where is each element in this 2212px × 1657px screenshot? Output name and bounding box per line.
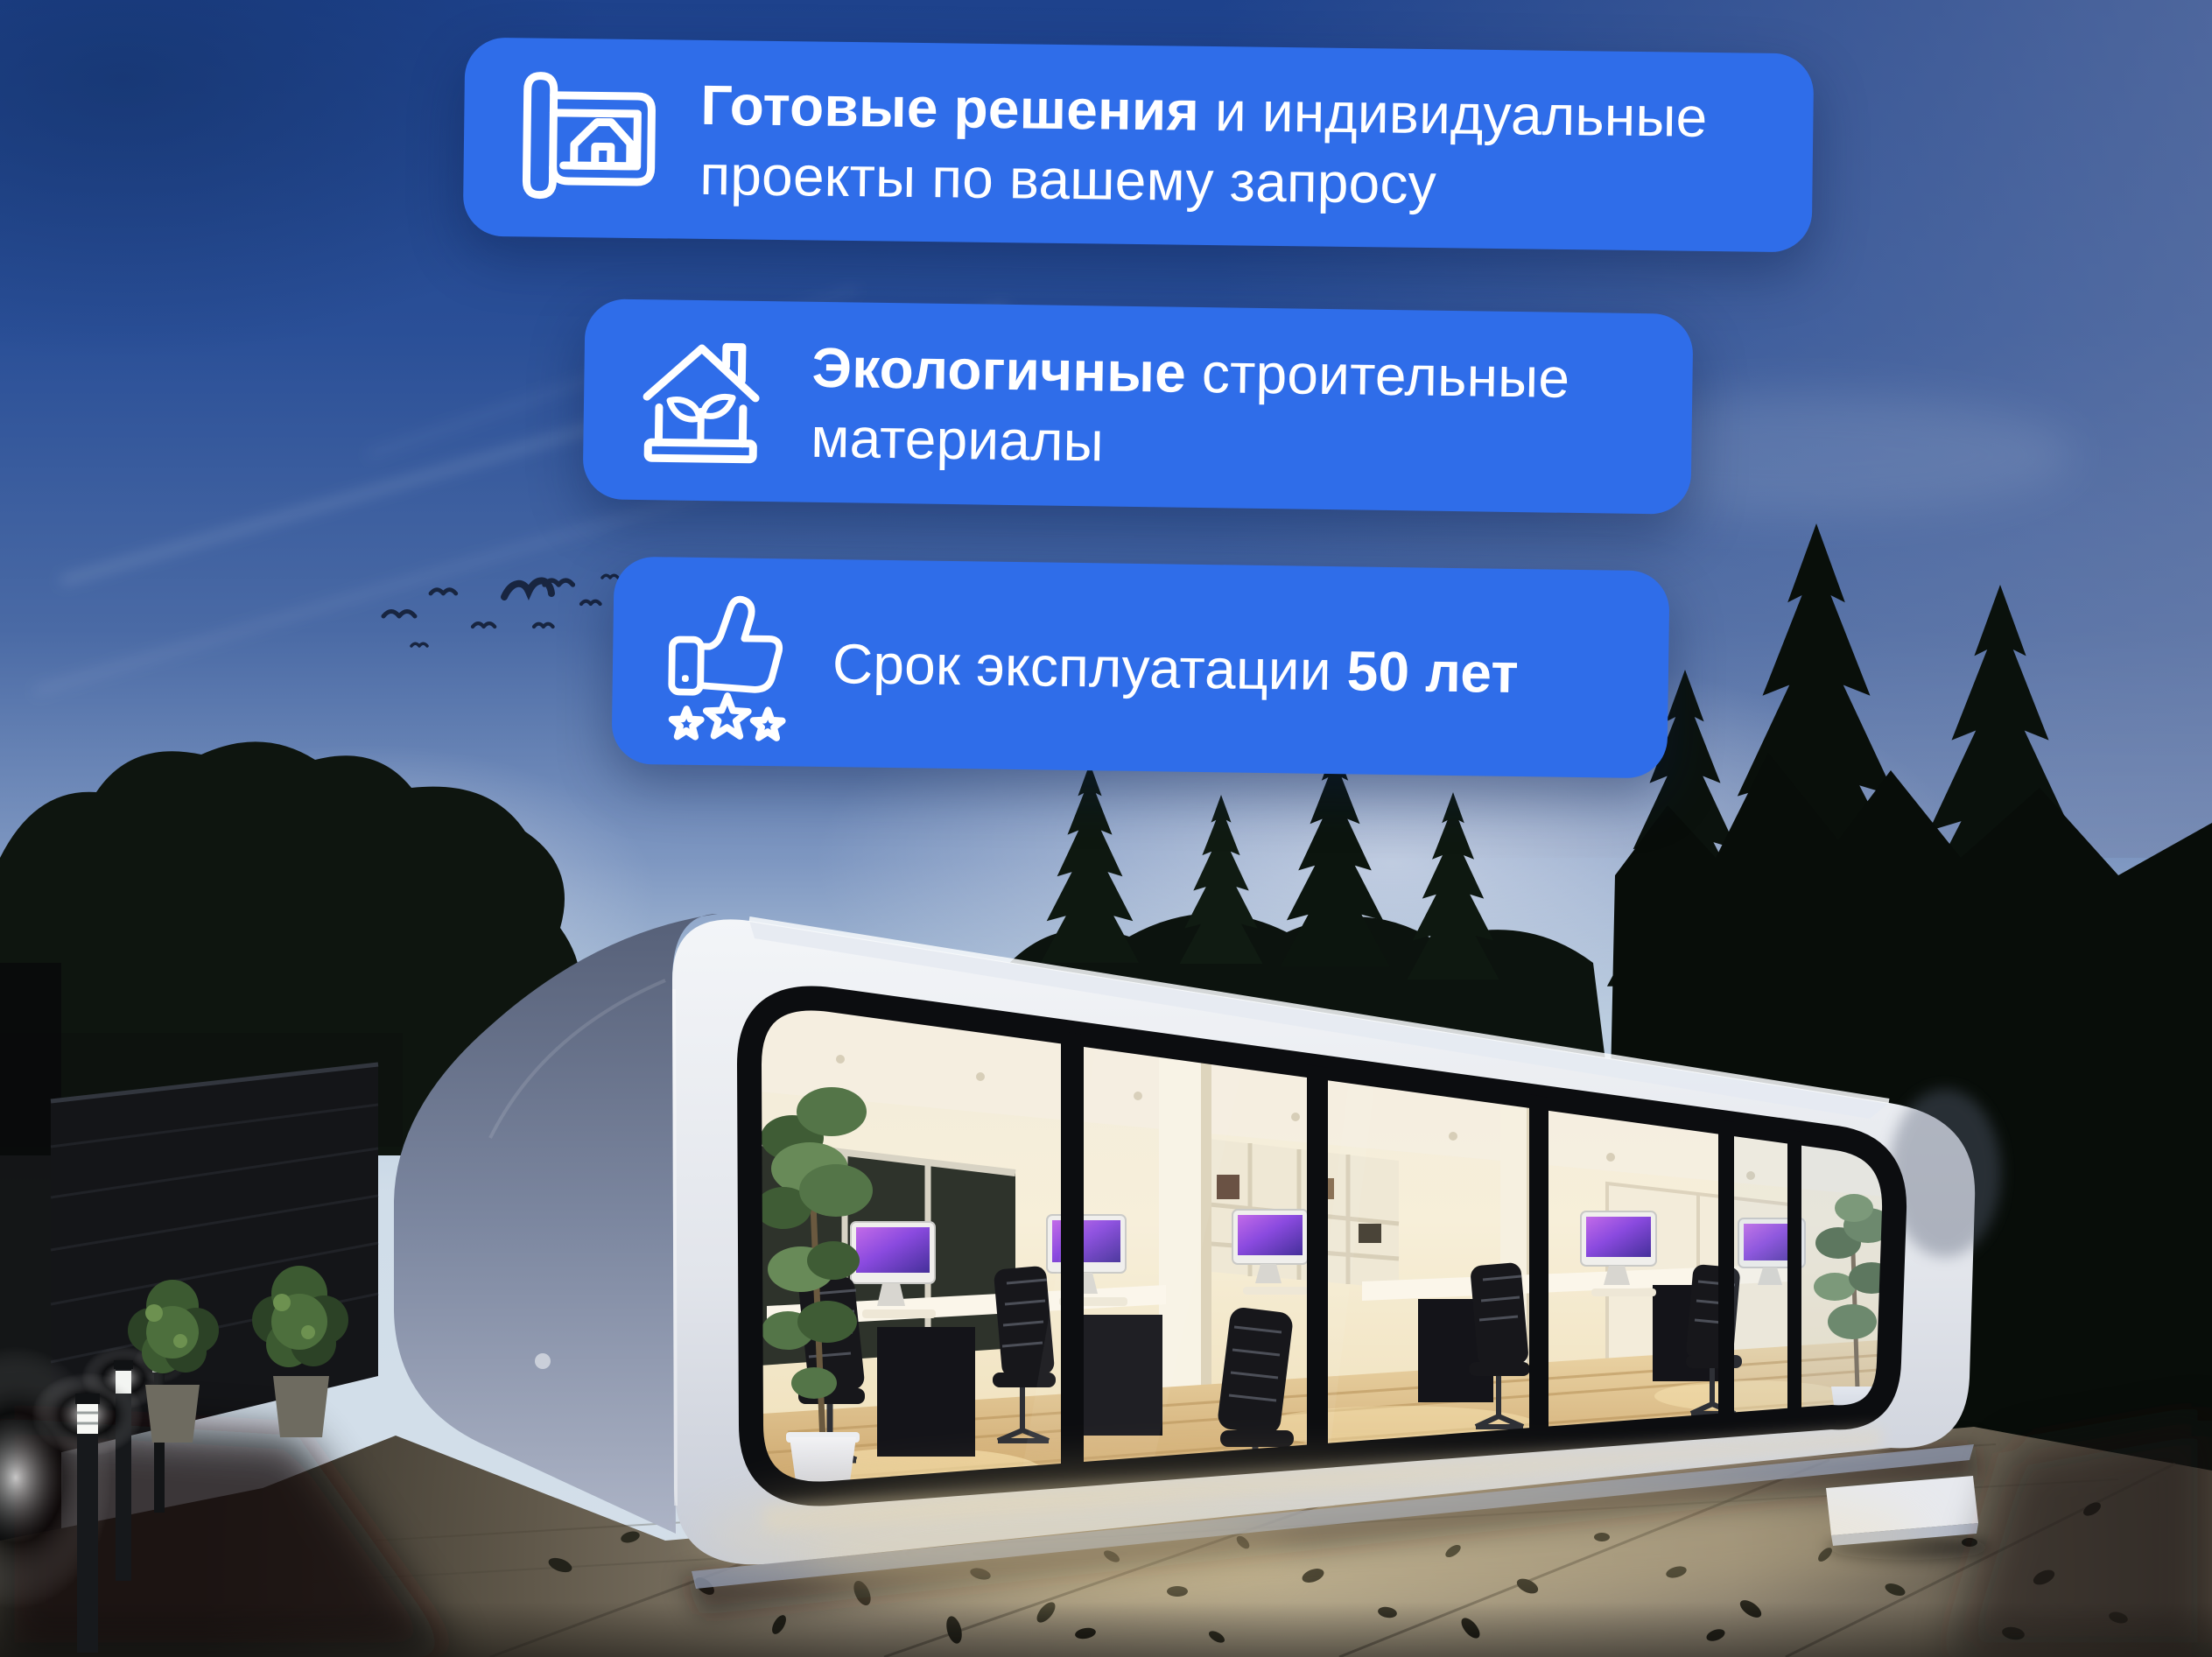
feature-card-text: Срок эксплуатации 50 лет: [832, 628, 1519, 708]
card-text-segment: Готовые решения: [700, 73, 1199, 142]
window-light-reflection: [700, 1462, 1926, 1611]
feature-card-text: Готовые решения и индивидуальные проекты…: [699, 69, 1708, 221]
feature-card-eco-materials: Экологичные строительные материалы: [582, 298, 1693, 515]
feature-card-ready-solutions: Готовые решения и индивидуальные проекты…: [463, 38, 1815, 253]
blueprint-house-icon: [512, 63, 663, 214]
thumbs-up-stars-icon: [661, 575, 799, 748]
eco-house-sprout-icon: [630, 329, 772, 471]
card-text-segment: Срок эксплуатации: [832, 632, 1348, 702]
text-line: Готовые решения и индивидуальные: [700, 69, 1708, 151]
text-line: материалы: [811, 402, 1569, 482]
card-text-segment: проекты по вашему запросу: [699, 143, 1436, 214]
text-line: Срок эксплуатации 50 лет: [832, 628, 1519, 708]
card-text-segment: строительные: [1185, 341, 1569, 409]
background-scene: [0, 0, 2212, 1657]
card-text-segment: Экологичные: [811, 335, 1186, 404]
promo-banner: Готовые решения и индивидуальные проекты…: [0, 0, 2212, 1657]
text-line: Экологичные строительные: [811, 332, 1570, 412]
feature-card-text: Экологичные строительные материалы: [811, 332, 1570, 482]
feature-card-service-life: Срок эксплуатации 50 лет: [611, 557, 1669, 779]
card-text-segment: и индивидуальные: [1199, 79, 1708, 148]
text-line: проекты по вашему запросу: [699, 139, 1707, 221]
card-text-segment: материалы: [811, 405, 1104, 473]
card-text-segment: 50 лет: [1346, 639, 1519, 705]
